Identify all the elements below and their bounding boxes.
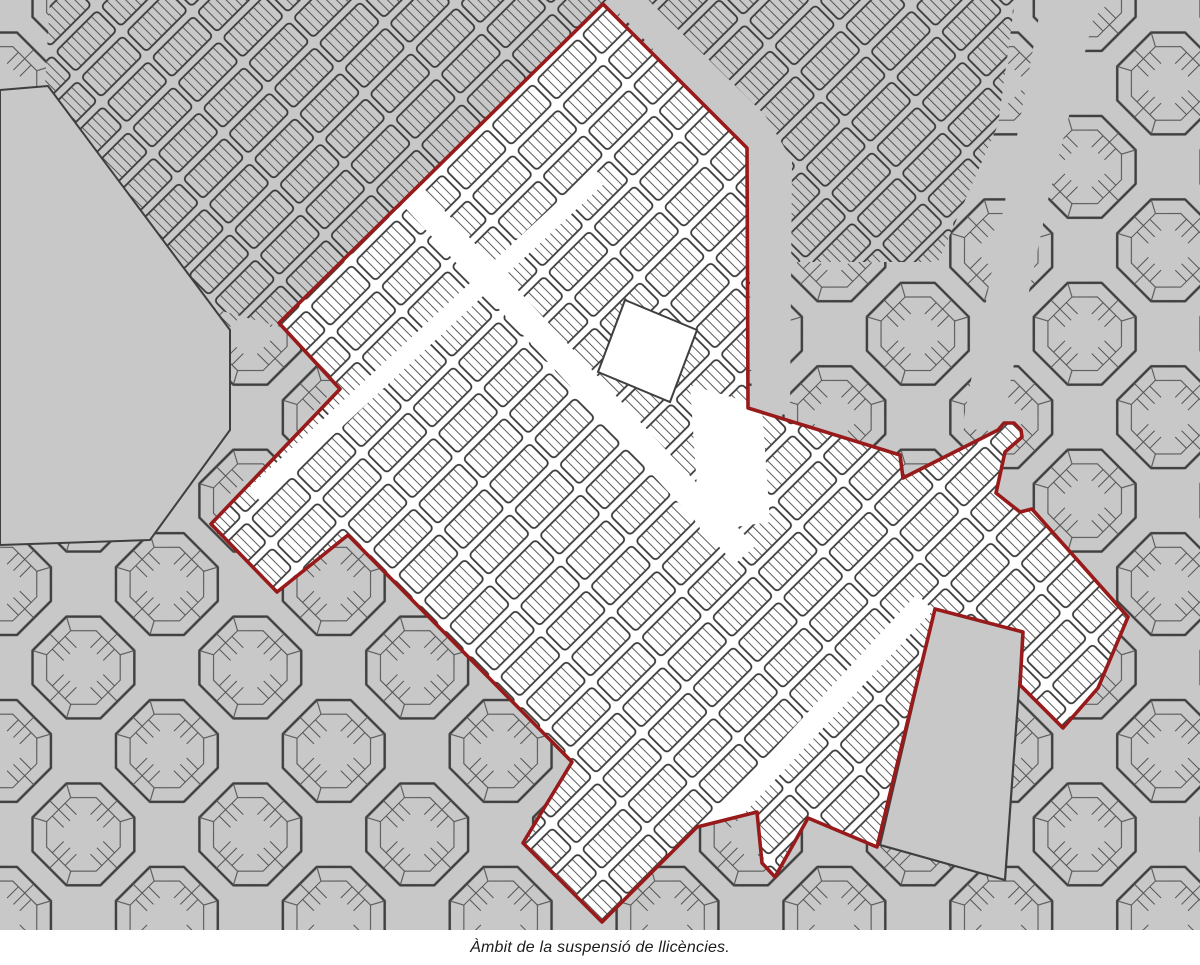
figure: Àmbit de la suspensió de llicències. — [0, 0, 1200, 965]
figure-caption: Àmbit de la suspensió de llicències. — [470, 939, 730, 957]
city-map — [0, 0, 1200, 930]
city-map-canvas — [0, 0, 1200, 930]
caption-band: Àmbit de la suspensió de llicències. — [0, 930, 1200, 965]
